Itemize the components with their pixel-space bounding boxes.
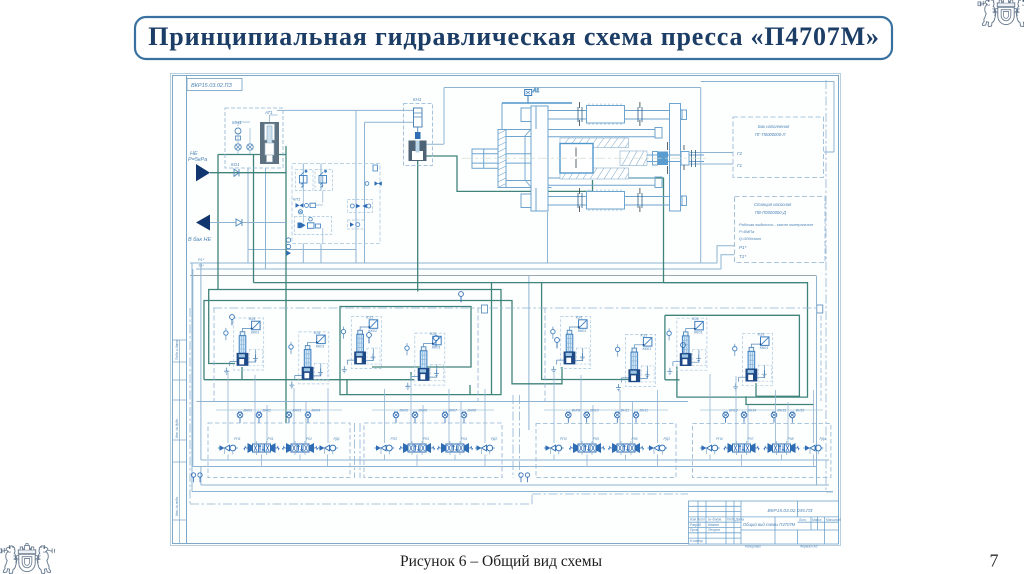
svg-text:Инв. № подл.: Инв. № подл. <box>175 496 179 516</box>
svg-text:№ докум.: № докум. <box>708 518 722 522</box>
svg-text:РД2: РД2 <box>491 437 497 441</box>
svg-text:ВН04: ВН04 <box>312 409 321 413</box>
svg-text:ПГ-П0000000-Л: ПГ-П0000000-Л <box>755 132 785 137</box>
svg-text:Q=500л/мин: Q=500л/мин <box>739 236 762 241</box>
svg-text:Т1*: Т1* <box>198 264 204 268</box>
svg-text:КП1: КП1 <box>293 197 300 202</box>
svg-text:ВН16: ВН16 <box>796 409 805 413</box>
svg-text:Р02: Р02 <box>306 437 312 441</box>
svg-text:Формат А3: Формат А3 <box>800 545 818 549</box>
svg-text:ВН02: ВН02 <box>263 409 272 413</box>
svg-text:Станция насосная: Станция насосная <box>754 202 792 207</box>
svg-text:РП1: РП1 <box>234 437 241 441</box>
svg-text:7: 7 <box>990 551 999 571</box>
svg-text:Р04: Р04 <box>461 437 467 441</box>
svg-text:ВН11: ВН11 <box>621 409 629 413</box>
svg-text:Дата: Дата <box>735 518 745 522</box>
svg-text:ВН07: ВН07 <box>449 409 458 413</box>
svg-text:Р03: Р03 <box>423 437 429 441</box>
svg-text:Подп. и дата: Подп. и дата <box>175 340 179 360</box>
svg-text:Изм Лист: Изм Лист <box>690 518 705 522</box>
svg-text:Рабочая жидкость - масло минер: Рабочая жидкость - масло минеральное <box>739 222 814 227</box>
svg-text:В бак НЕ: В бак НЕ <box>188 237 211 243</box>
svg-text:Р08: Р08 <box>788 437 794 441</box>
svg-text:Петров: Петров <box>708 528 720 532</box>
svg-text:Р07: Р07 <box>748 437 754 441</box>
svg-text:РП3: РП3 <box>560 437 567 441</box>
svg-text:Принципиальная гидравлическая: Принципиальная гидравлическая схема прес… <box>148 22 879 51</box>
svg-text:Копировал: Копировал <box>745 545 761 549</box>
svg-text:ВН01: ВН01 <box>244 409 253 413</box>
svg-text:РД4: РД4 <box>820 437 826 441</box>
svg-text:РП4: РП4 <box>716 437 723 441</box>
svg-text:ВКР15.03.02.ПЗ: ВКР15.03.02.ПЗ <box>191 83 233 89</box>
svg-text:ВН15: ВН15 <box>778 409 787 413</box>
svg-text:Подп.: Подп. <box>727 518 736 522</box>
svg-text:РД3: РД3 <box>664 437 670 441</box>
svg-text:Р05: Р05 <box>593 437 599 441</box>
svg-text:КО1: КО1 <box>231 162 240 167</box>
svg-text:ВН10: ВН10 <box>590 409 599 413</box>
svg-text:Разраб.: Разраб. <box>690 523 702 527</box>
svg-text:Т1*: Т1* <box>739 254 746 259</box>
svg-text:Лит.: Лит. <box>798 518 807 522</box>
svg-text:ВН14: ВН14 <box>748 409 757 413</box>
svg-text:Пров.: Пров. <box>690 528 699 532</box>
svg-text:Иванов: Иванов <box>708 523 719 527</box>
svg-text:Р06: Р06 <box>632 437 638 441</box>
svg-text:ПВ-П0000000-Д: ПВ-П0000000-Д <box>755 210 786 215</box>
svg-text:Р01: Р01 <box>268 437 274 441</box>
svg-text:ВН06: ВН06 <box>419 409 428 413</box>
svg-text:Р=5кРа: Р=5кРа <box>188 157 207 163</box>
svg-text:ВН03: ВН03 <box>293 409 302 413</box>
svg-text:ВН05: ВН05 <box>400 409 409 413</box>
svg-text:ВН12: ВН12 <box>640 409 649 413</box>
svg-text:АТ1: АТ1 <box>264 110 273 115</box>
svg-text:Г1: Г1 <box>737 163 742 168</box>
svg-text:Р1*: Р1* <box>198 258 205 262</box>
svg-text:ВКР15.03.02.045.ПЗ: ВКР15.03.02.045.ПЗ <box>768 508 813 514</box>
svg-text:А1: А1 <box>532 88 539 94</box>
svg-text:КН1: КН1 <box>413 97 422 102</box>
svg-text:Масса: Масса <box>812 518 822 522</box>
svg-text:Общий вид схемы П4707М: Общий вид схемы П4707М <box>743 522 796 527</box>
svg-text:РД1: РД1 <box>334 437 340 441</box>
svg-text:ВН08: ВН08 <box>468 409 477 413</box>
svg-text:МН1: МН1 <box>232 120 242 125</box>
svg-text:Масштаб: Масштаб <box>826 518 841 522</box>
svg-text:Р=8МПа: Р=8МПа <box>739 229 755 234</box>
svg-text:РП2: РП2 <box>391 437 398 441</box>
svg-text:Рисунок 6 – Общий вид схемы: Рисунок 6 – Общий вид схемы <box>400 553 603 570</box>
svg-text:Н.контр.: Н.контр. <box>690 539 704 543</box>
svg-text:Инв. № дубл.: Инв. № дубл. <box>175 418 179 438</box>
svg-text:ВН13: ВН13 <box>729 409 738 413</box>
svg-text:Г2: Г2 <box>737 151 742 156</box>
svg-text:ВН09: ВН09 <box>572 409 581 413</box>
svg-text:Бак наполнения: Бак наполнения <box>758 124 790 129</box>
svg-text:Р1*: Р1* <box>739 245 747 250</box>
